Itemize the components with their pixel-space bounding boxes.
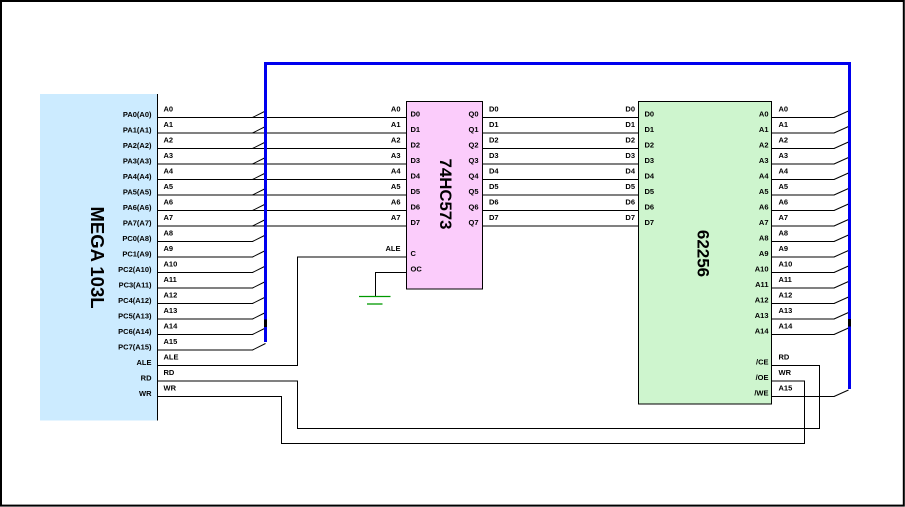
svg-text:Q6: Q6: [468, 203, 478, 212]
svg-text:Q7: Q7: [468, 218, 478, 227]
svg-text:A1: A1: [759, 125, 769, 134]
svg-text:PC6(A14): PC6(A14): [118, 327, 152, 336]
svg-text:A14: A14: [755, 327, 770, 336]
svg-text:Q3: Q3: [468, 156, 478, 165]
svg-text:C: C: [411, 249, 417, 258]
svg-text:A6: A6: [779, 198, 789, 207]
svg-text:D1: D1: [645, 125, 655, 134]
svg-text:A2: A2: [164, 136, 174, 145]
svg-text:A3: A3: [164, 151, 174, 160]
svg-text:D7: D7: [645, 218, 655, 227]
svg-text:A13: A13: [755, 311, 769, 320]
svg-text:PA5(A5): PA5(A5): [123, 188, 152, 197]
svg-text:/WE: /WE: [754, 389, 768, 398]
svg-text:D4: D4: [625, 167, 635, 176]
svg-text:D6: D6: [645, 203, 655, 212]
svg-text:A6: A6: [391, 198, 401, 207]
svg-text:A12: A12: [164, 291, 178, 300]
svg-text:PA7(A7): PA7(A7): [123, 219, 152, 228]
svg-text:A11: A11: [164, 275, 177, 284]
svg-text:PC7(A15): PC7(A15): [118, 343, 152, 352]
svg-text:A4: A4: [759, 172, 769, 181]
svg-text:PC1(A9): PC1(A9): [122, 250, 152, 259]
svg-text:D6: D6: [411, 203, 421, 212]
svg-text:D0: D0: [489, 105, 499, 114]
svg-text:Q4: Q4: [468, 172, 479, 181]
svg-text:RD: RD: [779, 353, 790, 362]
svg-text:RD: RD: [141, 374, 152, 383]
svg-text:D1: D1: [411, 125, 421, 134]
svg-text:ALE: ALE: [137, 358, 152, 367]
svg-text:PC5(A13): PC5(A13): [118, 312, 152, 321]
svg-text:PA1(A1): PA1(A1): [123, 126, 152, 135]
svg-text:A1: A1: [391, 120, 401, 129]
svg-text:ALE: ALE: [386, 244, 401, 253]
svg-text:A8: A8: [779, 229, 789, 238]
svg-text:A5: A5: [779, 182, 789, 191]
svg-text:PA4(A4): PA4(A4): [123, 172, 152, 181]
svg-text:A5: A5: [164, 182, 174, 191]
svg-text:A13: A13: [779, 306, 793, 315]
svg-text:A8: A8: [759, 234, 769, 243]
svg-text:A10: A10: [755, 265, 769, 274]
svg-text:A2: A2: [391, 136, 401, 145]
svg-text:A14: A14: [779, 322, 794, 331]
svg-text:RD: RD: [164, 368, 175, 377]
svg-text:A9: A9: [759, 249, 769, 258]
svg-text:PA3(A3): PA3(A3): [123, 157, 152, 166]
svg-text:A15: A15: [164, 337, 178, 346]
svg-text:PA2(A2): PA2(A2): [123, 141, 152, 150]
svg-text:WR: WR: [139, 389, 152, 398]
svg-text:A6: A6: [759, 203, 769, 212]
svg-text:/OE: /OE: [756, 373, 769, 382]
svg-text:PA0(A0): PA0(A0): [123, 110, 152, 119]
svg-text:D5: D5: [625, 182, 635, 191]
svg-text:D2: D2: [645, 141, 655, 150]
svg-text:D2: D2: [625, 136, 635, 145]
svg-text:A3: A3: [759, 156, 769, 165]
svg-text:A0: A0: [779, 105, 789, 114]
svg-text:A12: A12: [755, 296, 769, 305]
svg-text:A1: A1: [164, 120, 174, 129]
svg-text:WR: WR: [164, 384, 177, 393]
svg-text:MEGA 103L: MEGA 103L: [87, 206, 108, 308]
svg-text:A7: A7: [759, 218, 769, 227]
svg-text:A0: A0: [164, 105, 174, 114]
svg-text:D1: D1: [625, 120, 635, 129]
svg-text:A7: A7: [164, 213, 174, 222]
svg-text:A13: A13: [164, 306, 178, 315]
svg-text:A11: A11: [779, 275, 792, 284]
svg-text:D5: D5: [489, 182, 499, 191]
svg-text:D7: D7: [625, 213, 635, 222]
svg-text:D0: D0: [625, 105, 635, 114]
svg-text:D1: D1: [489, 120, 499, 129]
svg-text:A9: A9: [164, 244, 174, 253]
svg-text:A9: A9: [779, 244, 789, 253]
svg-text:D4: D4: [645, 172, 655, 181]
svg-text:74HC573: 74HC573: [436, 159, 455, 230]
svg-text:PC3(A11): PC3(A11): [119, 281, 152, 290]
svg-text:Q5: Q5: [468, 187, 478, 196]
svg-text:D2: D2: [489, 136, 499, 145]
svg-text:A3: A3: [391, 151, 401, 160]
svg-text:A5: A5: [759, 187, 769, 196]
svg-text:Q0: Q0: [468, 110, 478, 119]
svg-text:Q1: Q1: [468, 125, 478, 134]
svg-text:PC2(A10): PC2(A10): [118, 265, 152, 274]
svg-text:D2: D2: [411, 141, 421, 150]
svg-text:A0: A0: [391, 105, 401, 114]
svg-text:A0: A0: [759, 110, 769, 119]
svg-text:PA6(A6): PA6(A6): [123, 203, 152, 212]
svg-text:D3: D3: [411, 156, 421, 165]
svg-text:D7: D7: [411, 218, 421, 227]
svg-text:A2: A2: [759, 141, 769, 150]
svg-text:Q2: Q2: [468, 141, 478, 150]
svg-text:WR: WR: [779, 368, 792, 377]
svg-text:D5: D5: [645, 187, 655, 196]
svg-text:D6: D6: [489, 198, 499, 207]
svg-text:A7: A7: [391, 213, 401, 222]
svg-text:D0: D0: [645, 110, 655, 119]
svg-text:D5: D5: [411, 187, 421, 196]
svg-text:PC0(A8): PC0(A8): [122, 234, 152, 243]
svg-text:D3: D3: [645, 156, 655, 165]
svg-text:A15: A15: [779, 384, 793, 393]
svg-text:A6: A6: [164, 198, 174, 207]
svg-text:A12: A12: [779, 291, 793, 300]
svg-text:A4: A4: [391, 167, 401, 176]
svg-text:D4: D4: [411, 172, 421, 181]
svg-text:A4: A4: [779, 167, 789, 176]
svg-text:A11: A11: [755, 280, 768, 289]
svg-text:A2: A2: [779, 136, 789, 145]
svg-text:D3: D3: [625, 151, 635, 160]
svg-text:/CE: /CE: [756, 358, 769, 367]
svg-text:A10: A10: [779, 260, 793, 269]
svg-text:A10: A10: [164, 260, 178, 269]
svg-text:D3: D3: [489, 151, 499, 160]
svg-text:A4: A4: [164, 167, 174, 176]
svg-text:A1: A1: [779, 120, 789, 129]
svg-text:A14: A14: [164, 322, 179, 331]
svg-text:D7: D7: [489, 213, 499, 222]
svg-text:PC4(A12): PC4(A12): [118, 296, 152, 305]
svg-text:ALE: ALE: [164, 353, 179, 362]
svg-text:D4: D4: [489, 167, 499, 176]
svg-text:OC: OC: [411, 265, 423, 274]
svg-text:A3: A3: [779, 151, 789, 160]
svg-text:A7: A7: [779, 213, 789, 222]
svg-text:62256: 62256: [694, 230, 713, 277]
svg-text:D6: D6: [625, 198, 635, 207]
svg-text:D0: D0: [411, 110, 421, 119]
svg-text:A5: A5: [391, 182, 401, 191]
svg-text:A8: A8: [164, 229, 174, 238]
